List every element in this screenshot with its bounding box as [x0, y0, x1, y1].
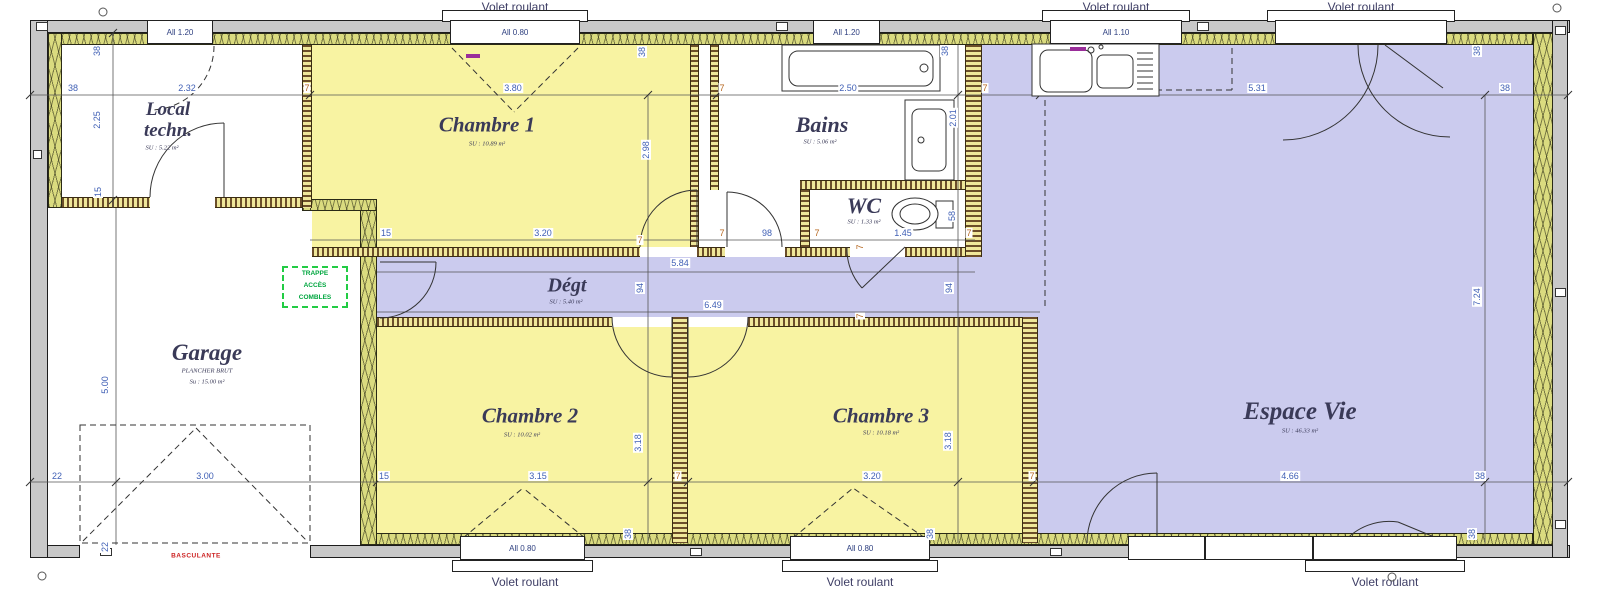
dimension-label: 3.18 [633, 433, 643, 453]
shutter-label: Volet roulant [827, 575, 894, 589]
dimension-label: 7 [965, 228, 972, 238]
partition-degt-top-b [785, 247, 800, 257]
trappe-acces-combles: TRAPPE ACCÈS COMBLES [282, 266, 348, 308]
bay-espacevie-fixed [1205, 536, 1313, 560]
washbasin [905, 100, 954, 180]
dimension-label: 38 [637, 46, 647, 58]
dimension-label: 3.20 [533, 228, 553, 238]
wall-post [690, 548, 702, 556]
bathtub [782, 45, 940, 91]
dimension-label: 3.15 [528, 471, 548, 481]
label-bains: Bains [796, 112, 849, 138]
dimension-label: 7 [813, 228, 820, 238]
partition-wc-top [800, 180, 965, 190]
garage-door-dashed-rect [80, 425, 310, 543]
dimension-label: 3.80 [503, 83, 523, 93]
label-local-techn-1: Local [146, 99, 190, 121]
garage-door-cross [83, 428, 307, 541]
partition-chambre2-chambre3 [672, 317, 688, 543]
dimension-label: 7 [674, 471, 681, 481]
floor-plan: All 1.20 All 0.80 All 1.20 All 1.10 All … [0, 0, 1600, 600]
dimension-label: 7 [303, 83, 310, 93]
wall-post [36, 22, 48, 31]
label-espace-vie: Espace Vie [1243, 398, 1356, 426]
trappe-line: ACCÈS [284, 280, 346, 292]
dimension-label: 3.18 [943, 431, 953, 451]
dimension-label: 15 [93, 186, 103, 198]
window-bains: All 1.20 [813, 20, 880, 44]
dimension-label: 7 [981, 83, 988, 93]
partition-degt-bottom-a [377, 317, 612, 327]
dimension-label: 2.25 [92, 110, 102, 130]
area-chambre1: SU : 10.89 m² [469, 141, 505, 148]
room-chambre3 [688, 327, 1022, 543]
shutter-label: Volet roulant [492, 575, 559, 589]
door-opening-espacevie [1128, 536, 1205, 560]
dimension-label: 1.45 [893, 228, 913, 238]
dimension-label: 15 [380, 228, 392, 238]
window-label: All 0.80 [847, 544, 874, 553]
dimension-label: 98 [761, 228, 773, 238]
room-espace-vie [982, 45, 1533, 543]
window-chambre3: All 0.80 [790, 536, 930, 560]
dimension-label: 22 [51, 471, 63, 481]
trappe-line: TRAPPE [284, 268, 346, 280]
wall-post [1555, 288, 1566, 297]
sub-garage: PLANCHER BRUT [182, 368, 233, 375]
dimension-label: 38 [1499, 83, 1511, 93]
window-label: All 0.80 [509, 544, 536, 553]
dimension-label: 38 [1474, 471, 1486, 481]
area-local-techn: SU : 5.22 m² [145, 145, 178, 152]
label-degt: Dégt [548, 275, 587, 298]
area-garage: Su : 15.00 m² [190, 379, 225, 386]
dimension-label: 7 [718, 83, 725, 93]
partition-chambre1-degt-a [312, 247, 640, 257]
insulation-garage-top [302, 199, 377, 211]
dimension-label: 2.01 [948, 108, 958, 128]
partition-wc-left [800, 190, 810, 247]
window-label: All 1.20 [167, 28, 194, 37]
dimension-label: 38 [623, 528, 633, 540]
dimension-label: 15 [378, 471, 390, 481]
partition-wc-bottom-a [800, 247, 850, 257]
dimension-label: 58 [947, 210, 957, 222]
partition-degt-bottom-b [748, 317, 1022, 327]
label-chambre2: Chambre 2 [482, 404, 578, 429]
wall-post [776, 22, 788, 31]
dimension-label: 6.49 [703, 300, 723, 310]
dimension-label: 38 [67, 83, 79, 93]
partition-espacevie-left [965, 45, 982, 257]
shutter-box-espacevie [1305, 560, 1465, 572]
window-local-techn: All 1.20 [147, 20, 213, 44]
partition-chambre1-bains-a [690, 45, 699, 247]
window-label: All 0.80 [502, 28, 529, 37]
dimension-label: 7 [718, 228, 725, 238]
partition-chambre3-espacevie [1022, 317, 1038, 543]
partition-degt-top-a [710, 247, 725, 257]
partition-local-garage-b [215, 197, 302, 208]
dimension-label: 38 [92, 45, 102, 57]
trappe-line: COMBLES [284, 292, 346, 304]
dimension-label: 7 [636, 235, 643, 245]
label-chambre1: Chambre 1 [439, 113, 535, 138]
insulation-garage-wall [360, 208, 377, 545]
dimension-label: 7 [855, 243, 865, 250]
dimension-label: 7 [855, 312, 865, 319]
partition-local-garage-a [62, 197, 150, 208]
window-chambre1: All 0.80 [450, 20, 580, 44]
dimension-label: 3.00 [195, 471, 215, 481]
dimension-label: 38 [940, 45, 950, 57]
label-wc: WC [847, 193, 881, 219]
wall-post [1555, 520, 1566, 529]
label-chambre3: Chambre 3 [833, 404, 929, 429]
area-chambre3: SU : 10.18 m² [863, 430, 899, 437]
toilet [892, 198, 953, 230]
dimension-label: 94 [944, 282, 954, 294]
insulation-right [1533, 33, 1553, 545]
dimension-label: 5.00 [100, 375, 110, 395]
dimension-label: 2.98 [641, 140, 651, 160]
wall-post [33, 150, 42, 159]
partition-local-chambre1 [302, 45, 312, 208]
dimension-label: 5.31 [1247, 83, 1267, 93]
window-label: All 1.20 [833, 28, 860, 37]
door-bains [727, 192, 782, 247]
window-label: All 1.10 [1103, 28, 1130, 37]
wall-left [30, 20, 48, 558]
area-degt: SU : 5.40 m² [549, 299, 582, 306]
insulation-left [48, 33, 62, 208]
label-garage: Garage [172, 340, 242, 366]
dimension-label: 2.50 [838, 83, 858, 93]
dimension-label: 2.32 [177, 83, 197, 93]
dimension-label: 7 [1028, 471, 1035, 481]
shutter-box-chambre2 [452, 560, 593, 572]
partition-chambre1-bains-b [710, 45, 719, 190]
dimension-label: 5.84 [670, 258, 690, 268]
shutter-box-chambre3 [782, 560, 938, 572]
area-bains: SU : 5.06 m² [803, 139, 836, 146]
window-chambre2: All 0.80 [460, 536, 585, 560]
dimension-label: 7.24 [1472, 287, 1482, 307]
bathtub-dashed-outline [791, 53, 899, 85]
dimension-label: 4.66 [1280, 471, 1300, 481]
dimension-label: 94 [635, 282, 645, 294]
wall-post [1197, 22, 1209, 31]
garage-door-type-label: BASCULANTE [171, 553, 221, 560]
dimension-label: 38 [925, 528, 935, 540]
wall-post [1050, 548, 1062, 556]
bay-entry [1275, 20, 1447, 44]
dimension-label: 38 [1472, 45, 1482, 57]
wall-post [1555, 26, 1566, 35]
bay-espacevie-slider [1313, 536, 1457, 560]
area-wc: SU : 1.33 m² [847, 219, 880, 226]
dimension-label: 22 [100, 541, 110, 553]
partition-wc-bottom-b [905, 247, 965, 257]
window-kitchen: All 1.10 [1050, 20, 1182, 44]
dimension-label: 3.20 [862, 471, 882, 481]
label-local-techn-2: techn. [144, 120, 192, 142]
area-espace-vie: SU : 46.33 m² [1282, 428, 1318, 435]
shutter-label: Volet roulant [1352, 575, 1419, 589]
area-chambre2: SU : 10.02 m² [504, 432, 540, 439]
dimension-label: 38 [1467, 528, 1477, 540]
